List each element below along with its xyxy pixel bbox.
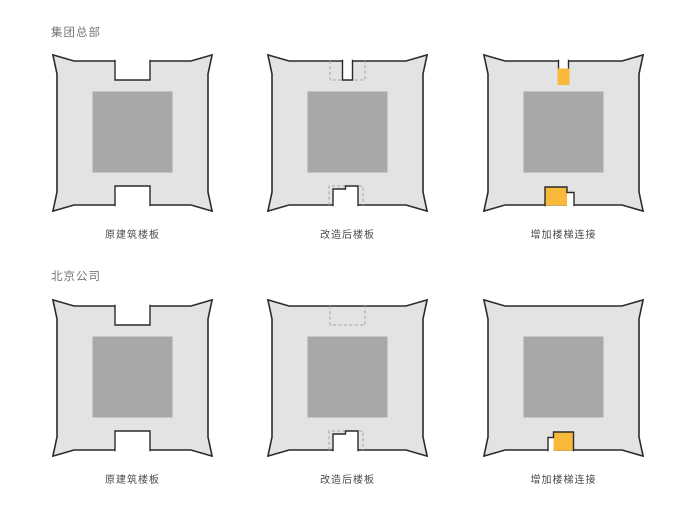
atrium-core [524, 92, 604, 173]
section-header-group-hq: 集团总部 [51, 24, 101, 40]
notch-opening [343, 59, 353, 80]
plan-label: 增加楼梯连接 [483, 226, 644, 241]
diagram-canvas: 集团总部 原建筑楼板 改造后楼板 增加楼梯连接 北京公司 原建筑楼板 改造后楼板… [0, 0, 700, 515]
plan-hq-renovated: 改造后楼板 [267, 54, 428, 241]
plan-bj-renovated: 改造后楼板 [267, 299, 428, 486]
atrium-core [308, 92, 388, 173]
notch-opening [115, 186, 150, 207]
notch-opening [115, 431, 150, 452]
floor-plan-svg [267, 54, 428, 212]
atrium-core [308, 337, 388, 418]
atrium-core [524, 337, 604, 418]
plan-hq-stair-added: 增加楼梯连接 [483, 54, 644, 241]
plan-label: 改造后楼板 [267, 471, 428, 486]
plan-label: 改造后楼板 [267, 226, 428, 241]
floor-plan-svg [483, 299, 644, 457]
stair-connection-highlight [554, 432, 574, 451]
stair-connection-highlight [558, 69, 570, 86]
notch-opening [115, 304, 150, 325]
floor-plan-svg [267, 299, 428, 457]
plan-label: 原建筑楼板 [52, 226, 213, 241]
plan-label: 增加楼梯连接 [483, 471, 644, 486]
floor-plan-svg [52, 54, 213, 212]
notch-opening [115, 59, 150, 80]
notch-opening [548, 438, 554, 453]
section-header-beijing: 北京公司 [51, 268, 101, 284]
plan-label: 原建筑楼板 [52, 471, 213, 486]
atrium-core [93, 92, 173, 173]
floor-plan-svg [52, 299, 213, 457]
atrium-core [93, 337, 173, 418]
notch-opening [559, 59, 569, 69]
notch-opening [567, 193, 574, 208]
plan-bj-original: 原建筑楼板 [52, 299, 213, 486]
plan-hq-original: 原建筑楼板 [52, 54, 213, 241]
stair-connection-highlight [545, 187, 567, 206]
plan-bj-stair-added: 增加楼梯连接 [483, 299, 644, 486]
floor-plan-svg [483, 54, 644, 212]
